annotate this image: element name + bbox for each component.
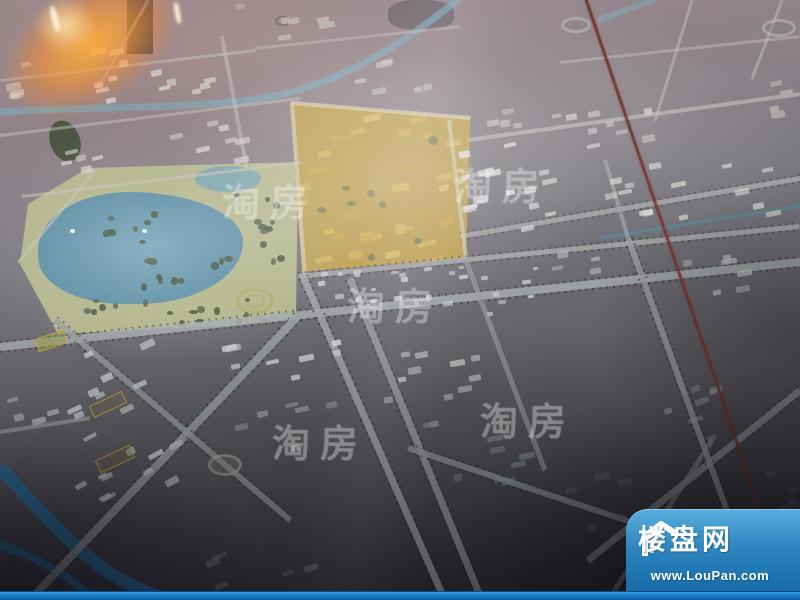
city-model-photo: 淘房 淘房 淘房 淘房 淘房 楼盘网 www.LouPan.com: [0, 0, 800, 600]
watermark: 淘房: [480, 391, 576, 446]
watermark: 淘房: [272, 413, 368, 468]
watermark: 淘房: [222, 172, 318, 227]
light-flare: [20, 0, 110, 65]
watermark: 淘房: [347, 276, 443, 331]
logo-site-name: 楼盘网: [638, 518, 734, 558]
logo-site-url: www.LouPan.com: [626, 568, 794, 583]
loupan-logo: 楼盘网 www.LouPan.com: [626, 509, 800, 591]
watermark: 淘房: [454, 156, 550, 211]
branding-bar: [0, 591, 800, 600]
